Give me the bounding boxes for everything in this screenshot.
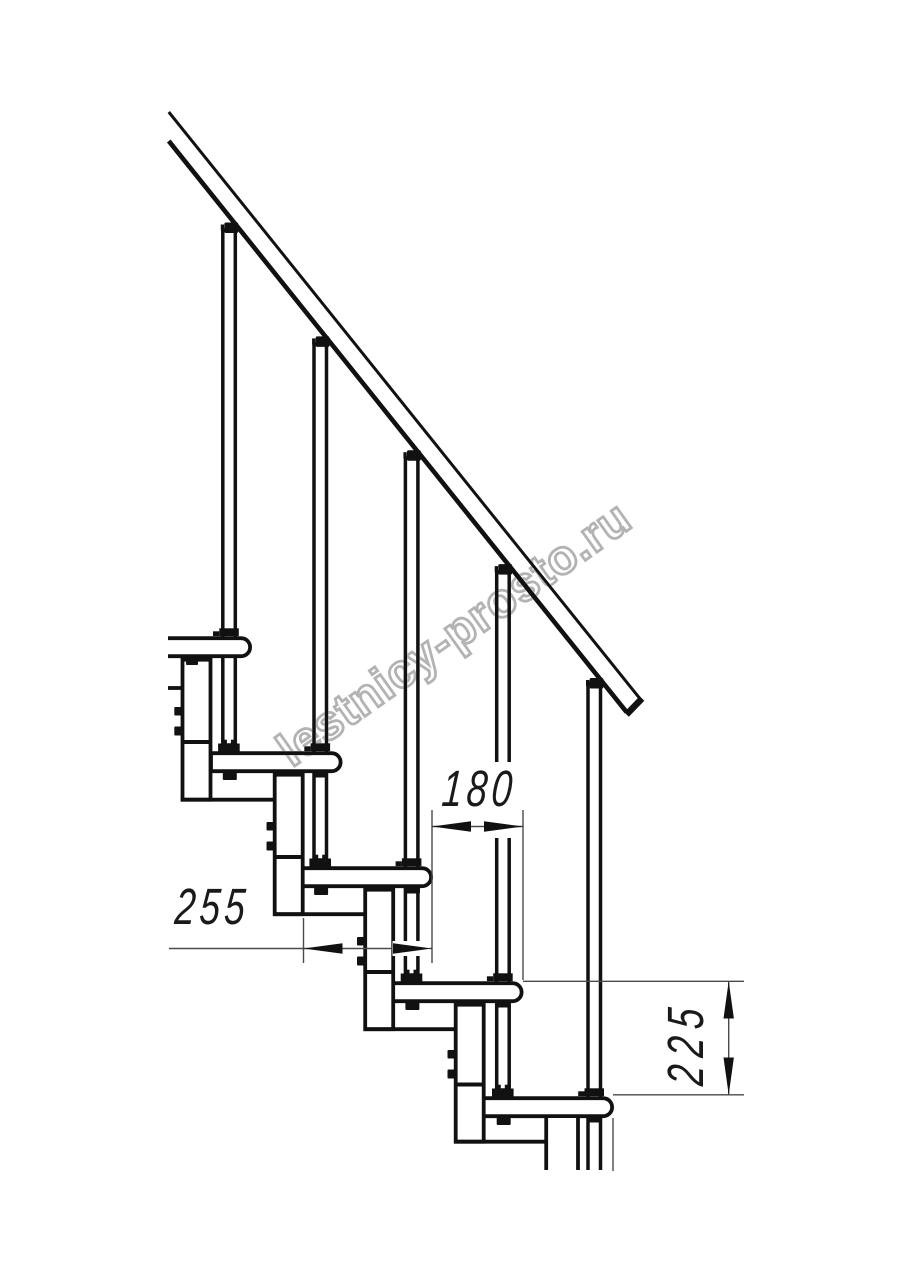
svg-text:255: 255 [172,879,251,935]
svg-text:180: 180 [440,761,518,817]
svg-text:225: 225 [658,998,714,1088]
